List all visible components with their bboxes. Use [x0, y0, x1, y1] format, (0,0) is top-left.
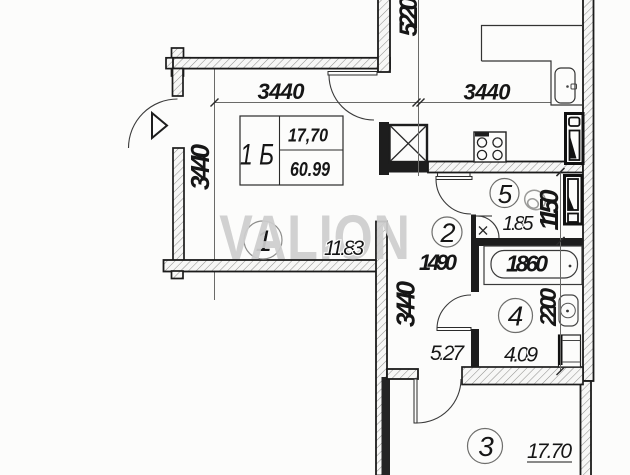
svg-text:3440: 3440 — [258, 79, 306, 104]
svg-text:17.70: 17.70 — [527, 440, 572, 463]
svg-text:VALION: VALION — [219, 203, 410, 274]
svg-text:1 Б: 1 Б — [240, 139, 274, 172]
svg-text:17,70: 17,70 — [288, 126, 328, 146]
svg-text:5: 5 — [498, 179, 513, 209]
svg-text:5.27: 5.27 — [430, 342, 465, 365]
svg-text:1150: 1150 — [534, 189, 564, 231]
svg-text:4: 4 — [508, 301, 524, 332]
svg-text:1.85: 1.85 — [503, 213, 535, 235]
svg-text:2: 2 — [439, 218, 455, 248]
svg-text:1860: 1860 — [506, 251, 548, 277]
svg-text:2200: 2200 — [535, 288, 561, 327]
svg-text:3440: 3440 — [464, 80, 512, 105]
svg-text:3: 3 — [478, 431, 494, 462]
svg-text:11.83: 11.83 — [324, 237, 364, 260]
svg-text:5220: 5220 — [395, 0, 423, 37]
svg-text:4.09: 4.09 — [504, 344, 538, 367]
svg-text:60.99: 60.99 — [290, 159, 331, 181]
svg-text:1490: 1490 — [419, 250, 458, 275]
svg-text:3440: 3440 — [391, 280, 421, 327]
svg-text:3440: 3440 — [185, 143, 215, 190]
